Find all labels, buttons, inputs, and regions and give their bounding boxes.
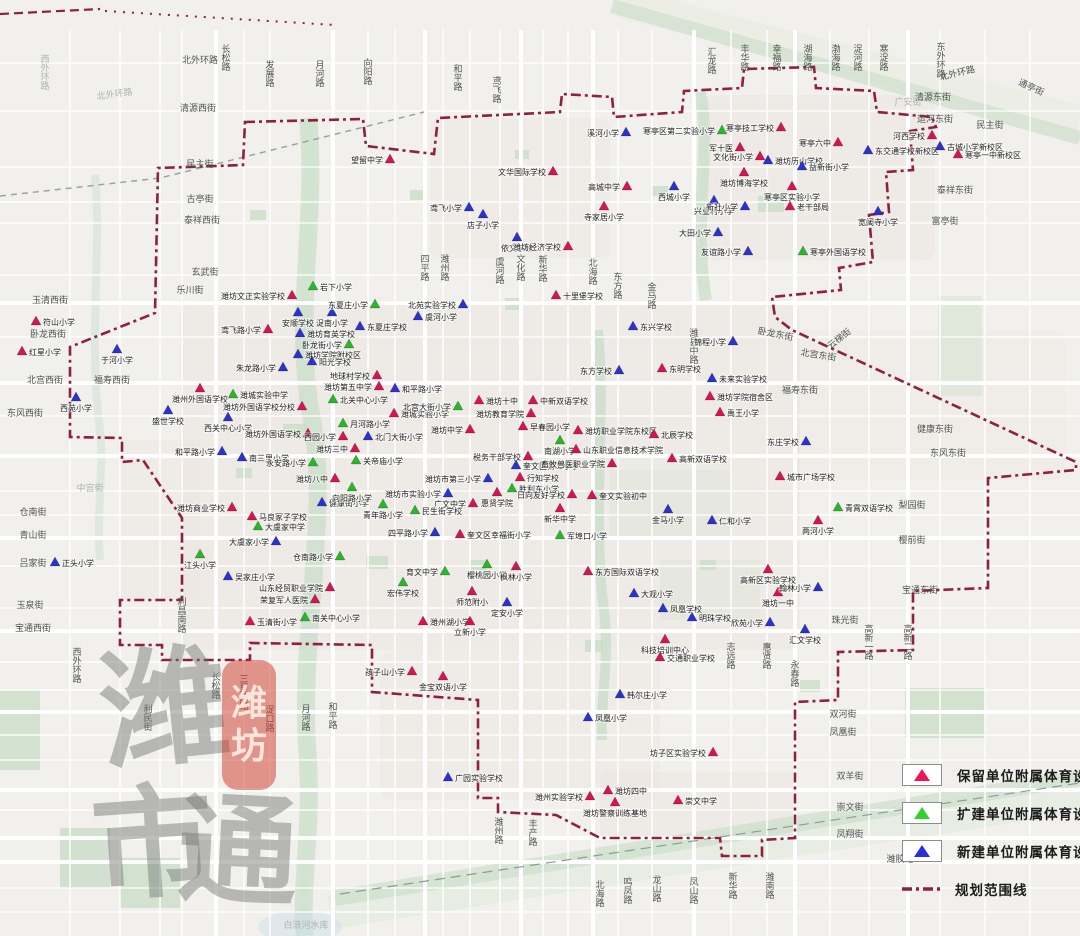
facility-marker-retain [31,316,41,325]
legend-triangle-icon [914,845,930,857]
legend-item-1: 扩建单位附属体育设施 [902,802,1080,824]
facility-label: 两河小学 [802,526,834,536]
street-label: 和平路 [328,702,337,730]
facility-label: 文华国际学校 [498,167,546,177]
facility-label: 枫林小学 [500,572,532,582]
facility-label: 奎文实验初中 [599,491,647,501]
facility-label: 潍坊第五中学 [324,382,372,392]
facility-label: 马良冢子学校 [259,512,307,522]
street-label: 文化路 [516,253,525,282]
facility-label: 玉清街小学 [257,617,297,627]
map-legend: 保留单位附属体育设施扩建单位附属体育设施新建单位附属体育设施规划范围线 [902,764,1080,916]
facility-marker-retain [287,290,297,299]
street-label: 泰祥东街 [937,184,973,195]
facility-label: 东夏庄学校 [367,322,407,332]
street-label: 丰华路 [740,43,749,72]
legend-swatch-box [902,802,942,824]
boundary-fragment-top [0,9,100,14]
street-label: 东方路 [613,271,622,300]
street-label: 浞口路 [265,705,274,733]
facility-label: 安顺学校 [282,318,314,328]
facility-label: 潍坊警察训练基地 [583,808,647,818]
facility-label: 锦程小学 [694,337,726,347]
facility-label: 正头小学 [62,558,94,568]
street-label: 鸢飞路 [492,75,501,104]
facility-label: 潍州湖小学 [430,617,470,627]
facility-label: 鸢飞路小学 [221,325,261,335]
facility-label: 河西学校 [893,131,925,141]
street-label: 凤翔街 [836,828,863,839]
facility-label: 青霄双语学校 [845,503,893,513]
street-label: 运河东街 [917,113,953,124]
facility-marker-retain [708,747,718,756]
street-label: 利民街 [143,703,152,732]
facility-label: 老干部局 [797,202,829,212]
street-label: 梨园街 [898,499,925,510]
street-label: 月河路 [301,704,310,732]
facility-label: 宽阔寺小学 [858,217,898,227]
facility-marker-new [935,141,945,150]
facility-label: 于河小学 [101,355,133,365]
facility-label: 潍坊职业学院东校区 [585,426,657,436]
facility-label: 潍坊市第三小学 [425,474,481,484]
facility-label: 宏伟学校 [387,588,419,598]
legend-triangle-icon [914,769,930,781]
facility-label: 北门大街小学 [375,432,423,442]
facility-marker-new [669,181,679,190]
facility-label: 凤凰小学 [595,713,627,723]
street-label: 东风东街 [930,447,966,458]
street-label: 古亭街 [186,193,213,204]
facility-label: 广园实验学校 [455,773,503,783]
street-label: 宝通东街 [902,584,938,595]
facility-label: 符山小学 [43,317,75,327]
facility-label: 益新街小学 [809,162,849,172]
facility-label: 东方国际双语学校 [595,567,659,577]
facility-label: 新华中学 [544,514,576,524]
facility-label: 禹王小学 [727,408,759,418]
legend-item-3: 规划范围线 [902,878,1080,900]
facility-label: 山东经贸职业学院 [259,583,323,593]
facility-label: 东明学校 [669,364,701,374]
facility-label: 江头小学 [184,560,216,570]
facility-label: 吴家庄小学 [235,572,275,582]
facility-label: 鸢飞小学 [430,203,462,213]
facility-label: 坊子区实验学校 [650,748,706,758]
facility-label: 中新双语学校 [540,396,588,406]
facility-marker-new [163,405,173,414]
facility-label: 惠贤学院 [481,498,513,508]
facility-label: 汇文学校 [789,635,821,645]
facility-label: 金宝双语小学 [419,682,467,692]
facility-label: 虞河小学 [425,312,457,322]
legend-item-2: 新建单位附属体育设施 [902,840,1080,862]
legend-dashline-icon [902,879,940,899]
facility-label: 税务干部学校 [473,452,521,462]
street-label: 健康东街 [917,423,953,434]
facility-label: 仓南路小学 [293,552,333,562]
facility-label: 潍坊外国语学校 [245,429,301,439]
facility-label: 友谊路小学 [701,247,741,257]
street-label: 樱前街 [898,534,925,545]
zhuo-river [700,92,706,300]
street-label: 福寿西街 [94,374,130,385]
facility-label: 潍州实验学校 [535,792,583,802]
facility-marker-retain [385,154,395,163]
street-label: 凤凰街 [829,726,856,737]
facility-label: 朱龙路小学 [236,363,276,373]
street-label: 青山街 [19,529,46,540]
facility-marker-new [813,582,823,591]
facility-label: 潍坊育英学校 [307,329,355,339]
street-label: 乐川街 [176,284,203,295]
street-label: 鸣凤路 [623,876,632,905]
street-label: 丰产路 [528,818,537,847]
facility-label: 寒亭六中 [799,138,831,148]
facility-label: 寒亭区第二实验小学 [643,126,715,136]
legend-swatch-box [902,840,942,862]
facility-label: 潍坊文正实验学校 [221,291,285,301]
facility-label: 地球村学校 [330,371,370,381]
street-label: 龙山路 [652,874,661,903]
street-label: 双河街 [829,708,856,719]
facility-marker-new [621,127,631,136]
facility-label: 潍坊学院宿舍区 [717,392,773,402]
facility-label: 高城中学 [588,182,620,192]
street-label: 潍州路 [494,816,503,845]
facility-marker-new [71,392,81,401]
facility-label: 大虞家中学 [265,522,305,532]
facility-label: 文化街小学 [713,152,753,162]
facility-label: 溪河小学 [587,128,619,138]
facility-label: 奎文区幸福街小学 [467,530,531,540]
street-label: 湖海路 [803,44,812,72]
street-label: 浞河路 [853,44,862,72]
street-label: 北宫西街 [27,374,63,385]
street-label: 三里庄路 [239,674,248,711]
street-label: 玉泉街 [16,599,43,610]
street-label: 永春路 [790,659,799,688]
facility-label: 大田小学 [679,228,711,238]
facility-label: 山东职业信息技术学院 [583,445,663,455]
facility-label: 盛世学校 [152,416,184,426]
facility-label: 北关中心小学 [340,395,388,405]
legend-label: 扩建单位附属体育设施 [957,803,1080,823]
facility-label: 育文中学 [406,567,438,577]
street-label: 中宫街 [76,482,103,493]
facility-label: 店子小学 [467,220,499,230]
facility-label: 和平路小学 [175,447,215,457]
street-label: 四平路 [420,254,429,282]
facility-label: 军十医 [709,143,733,153]
facility-label: 潍坊市实验小学 [385,489,441,499]
street-label: 吕家街 [19,557,46,568]
street-label: 玄武街 [191,266,218,277]
street-label: 虞河路 [495,256,504,285]
facility-label: 北辰学校 [661,430,693,440]
legend-label: 规划范围线 [955,879,1028,899]
street-label: 潍南路 [765,871,774,900]
street-label: 寒浞路 [879,43,888,72]
facility-label: 潍坊三中 [316,444,348,454]
railway-northwest [0,112,424,196]
street-label: 北外环路 [96,86,133,102]
street-label: 民主街 [976,119,1003,130]
facility-label: 永安路小学 [266,458,306,468]
facility-label: 北苑实验学校 [408,300,456,310]
facility-label: 和平路小学 [402,384,442,394]
facility-label: 东夏庄小学 [328,300,368,310]
street-label: 渤海路 [831,43,840,72]
facility-label: 潍坊十中 [486,396,518,406]
facility-label: 向阳路小学 [332,493,372,503]
facility-marker-expand [833,502,843,511]
facility-label: 望留中学 [351,155,383,165]
street-label: 潍州路 [440,253,449,282]
street-label: 玉清西街 [32,294,68,305]
street-label: 西外环路 [72,647,81,684]
boundary-fragment-top2 [105,11,335,25]
legend-label: 保留单位附属体育设施 [957,765,1080,785]
street-label: 北外环路 [182,54,218,65]
street-label: 西外环路 [40,54,49,91]
street-label: 高新一路 [864,623,873,661]
facility-label: 荣复军人医院 [260,595,308,605]
facility-label: 潍坊八中 [296,474,328,484]
facility-label: 城市广场学校 [787,472,835,482]
legend-swatch-box [902,764,942,786]
facility-label: 东交通学校新校区 [875,146,939,156]
street-label: 利昌南路 [177,596,186,634]
facility-label: 寒亭外国语学校 [810,247,866,257]
legend-item-0: 保留单位附属体育设施 [902,764,1080,786]
street-label: 发展路 [265,59,274,88]
facility-label: 四平路小学 [388,528,428,538]
street-label: 民主街 [186,158,213,169]
facility-label: 寒亭区实验小学 [764,192,820,202]
facility-label: 翰林小学 [779,583,811,593]
street-label: 汇龙路 [707,47,716,75]
facility-marker-new [800,624,810,633]
street-label: 志远路 [726,641,735,670]
facility-label: 凤凰学校 [670,604,702,614]
facility-label: 南湖小学 [544,446,576,456]
street-label: 清源西街 [180,102,216,113]
facility-label: 畜牧兽医职业学院 [541,459,605,469]
street-label: 富亭街 [931,215,958,226]
street-label: 长松路 [221,43,230,72]
facility-label: 未来实验学校 [719,374,767,384]
facility-label: 日向友好学校 [517,490,565,500]
facility-label: 潍坊商业学校 [177,503,225,513]
street-label: 仓南街 [19,506,46,517]
facility-label: 潍坊教育学院 [476,409,524,419]
facility-label: 东方学校 [580,366,612,376]
facility-label: 金马小学 [652,515,684,525]
facility-label: 新社小学 [706,202,738,212]
legend-triangle-icon [914,807,930,819]
street-label: 卧龙西街 [30,328,66,339]
facility-label: 立新小学 [454,627,486,637]
facility-label: 南关中心小学 [312,613,360,623]
facility-label: 西园小学 [304,432,336,442]
facility-label: 仁和小学 [719,516,751,526]
street-label: 月河路 [315,60,324,88]
facility-label: 孩子山小学 [365,667,405,677]
facility-label: 十里堡学校 [563,291,603,301]
facility-label: 潍州外国语学校 [172,394,228,404]
street-label: 凤山路 [689,877,698,905]
street-label: 长松路 [211,671,220,700]
facility-label: 潍坊博海学校 [720,178,768,188]
facility-label: 潍坊四中 [615,786,647,796]
facility-label: 寒亭一中新校区 [965,150,1021,160]
facility-label: 民生街学校 [422,506,462,516]
street-label: 福寿东街 [782,384,818,395]
facility-label: 定安小学 [491,608,523,618]
facility-label: 寒亭技工学校 [726,123,774,133]
facility-marker-retain [17,346,27,355]
street-label: 高新二路 [903,623,912,661]
street-label: 惠贤路 [762,641,771,670]
facility-label: 韩尔庄小学 [627,690,667,700]
facility-label: 行知学校 [527,473,559,483]
facility-label: 西城小学 [658,192,690,202]
street-label: 金马路 [647,281,656,310]
facility-label: 月河路小学 [350,419,390,429]
facility-label: 军埠口小学 [567,531,607,541]
facility-label: 崇文中学 [685,796,717,806]
facility-label: 卧龙街小学 [302,340,342,350]
facility-label: 青年路小学 [363,510,403,520]
facility-label: 交通职业学校 [667,653,715,663]
facility-label: 潍坊外国语学校分校 [223,402,295,412]
facility-label: 潍城实验中学 [240,390,288,400]
facility-label: 潍坊经济学校 [513,242,561,252]
facility-label: 潍坊一中 [762,598,794,608]
street-label: 宝通西街 [15,622,51,633]
facility-label: 阳光学校 [319,357,351,367]
facility-label: 浞南小学 [316,318,348,328]
facility-label: 寺家居小学 [584,212,624,222]
street-label: 北海路 [588,258,597,286]
map-canvas: 北外环路长松路发展路月河路向阳路和平路鸢飞路汇龙路丰华路幸福路湖海路渤海路浞河路… [0,0,1080,936]
facility-label: 北宫大街小学 [403,402,451,412]
street-label: 和平路 [453,64,462,92]
street-label: 白浪河水库 [283,919,328,930]
legend-label: 新建单位附属体育设施 [957,841,1080,861]
facility-label: 明珠学校 [699,613,731,623]
street-label: 东风西街 [7,407,43,418]
street-label: 向阳路 [363,57,372,86]
facility-label: 西苑小学 [60,403,92,413]
facility-label: 岩下小学 [320,282,352,292]
facility-label: 师范附小 [456,597,488,607]
facility-label: 红星小学 [29,347,61,357]
street-label: 双羊街 [836,770,863,781]
street-label: 广安街 [894,96,921,107]
street-label: 新华路 [728,871,737,900]
facility-label: 东庄学校 [767,437,799,447]
street-label: 北海路 [595,880,604,908]
facility-label: 东兴学校 [640,322,672,332]
facility-marker-new [50,557,60,566]
facility-label: 潍坊中学 [431,425,463,435]
facility-label: 大观小学 [641,589,673,599]
facility-label: 关帝庙小学 [363,456,403,466]
facility-label: 高新双语学校 [679,454,727,464]
facility-label: 早春园小学 [530,422,570,432]
street-label: 崇文街 [836,801,863,812]
facility-label: 欣苑小学 [731,618,763,628]
facility-marker-retain [551,290,561,299]
street-label: 幸福路 [772,44,781,72]
street-label: 珠光街 [831,614,858,625]
facility-marker-retain [813,515,823,524]
facility-label: 大虞家小学 [229,537,269,547]
street-label: 新华路 [538,254,547,283]
street-label: 泰祥西街 [184,214,220,225]
facility-marker-retain [622,181,632,190]
